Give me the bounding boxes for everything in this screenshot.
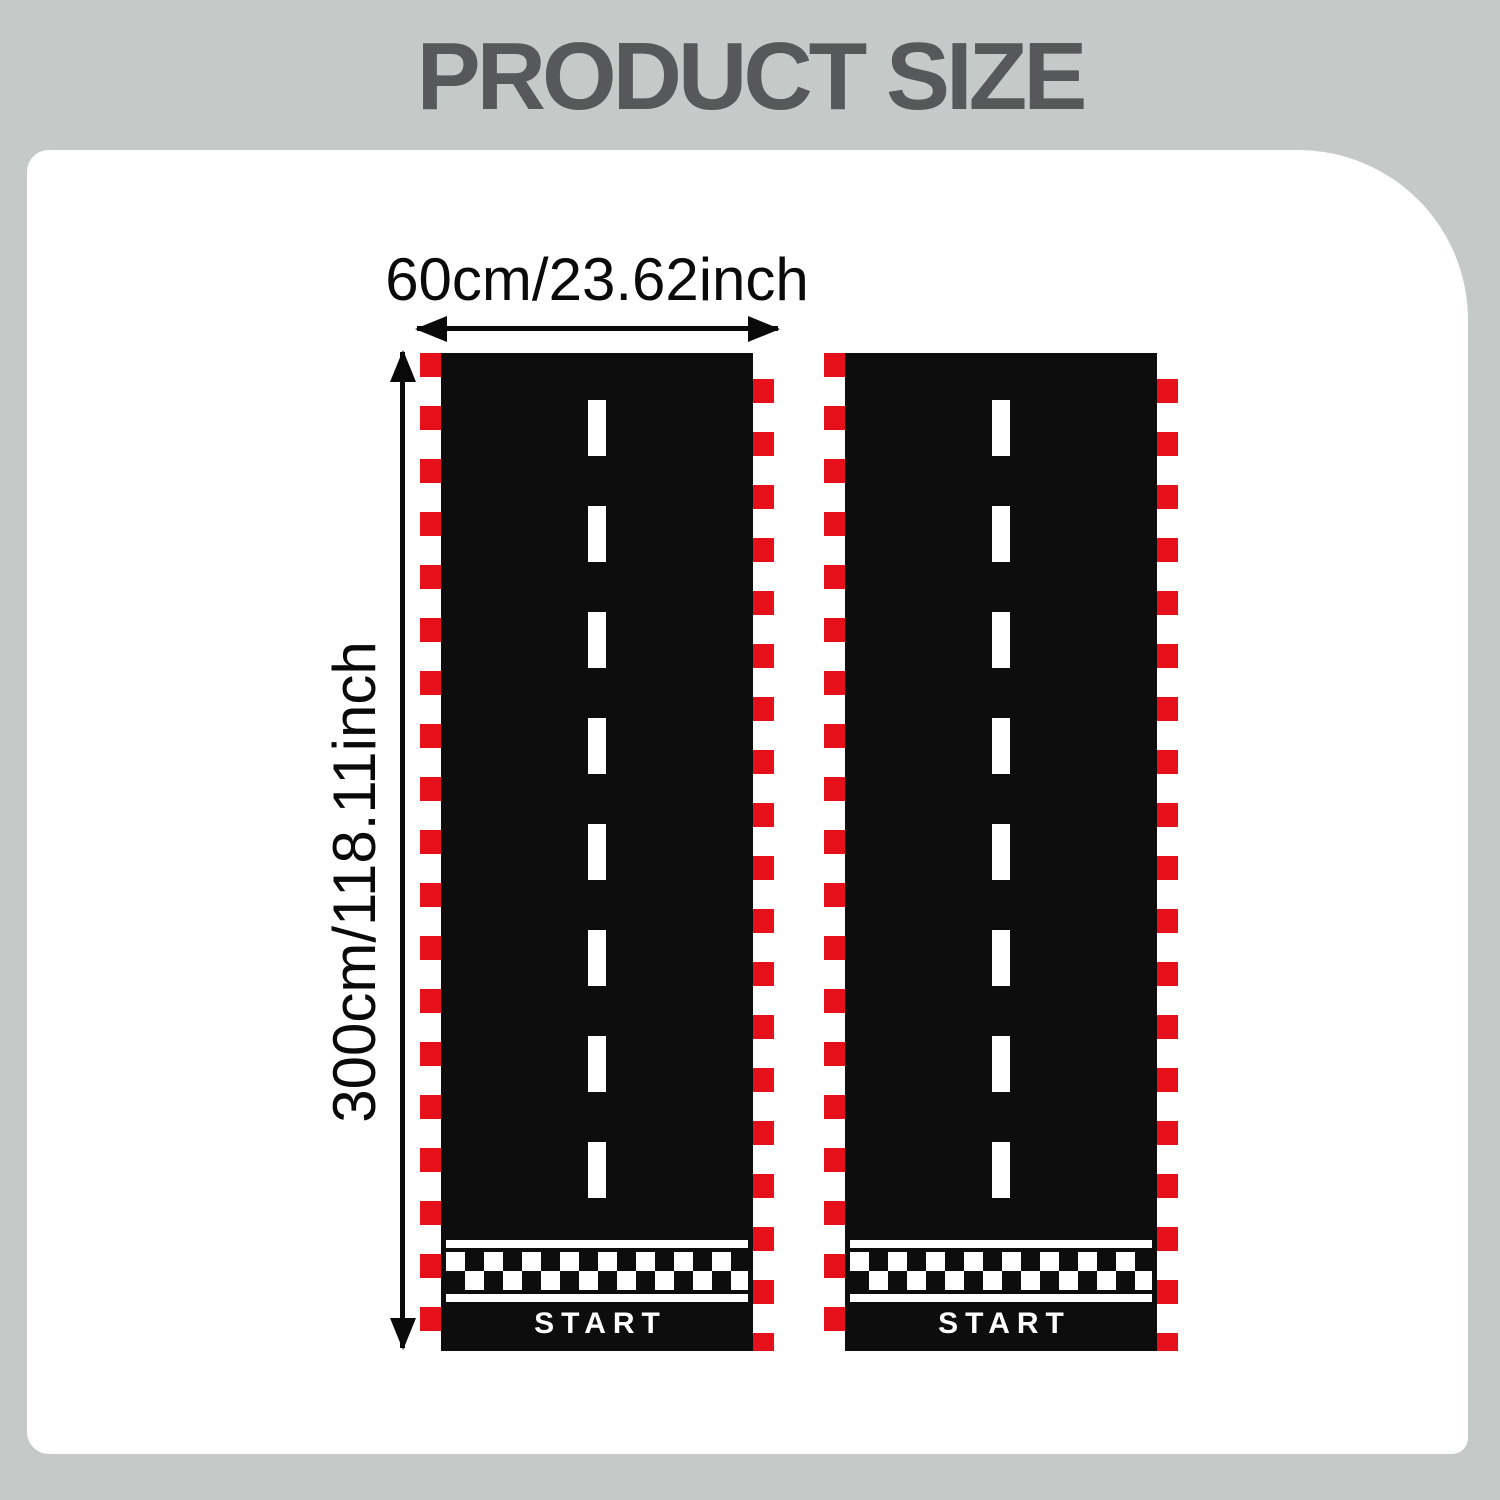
red-dashed-border-right [753,379,774,1351]
checkered-flag-band [850,1252,1152,1290]
road-center-dashed-line [588,400,606,1198]
finish-line-bottom-bar [850,1294,1152,1302]
page-title: PRODUCT SIZE [0,22,1500,132]
checkered-flag-band [446,1252,748,1290]
height-dimension-label: 300cm/118.11inch [320,562,384,1202]
start-finish-section: START [446,1240,748,1341]
finish-line-top-bar [850,1240,1152,1248]
page-background: { "title": "PRODUCT SIZE", "dimension_la… [0,0,1500,1500]
finish-line-top-bar [446,1240,748,1248]
height-dimension-arrow-icon [400,352,405,1348]
road-center-dashed-line [992,400,1010,1198]
width-dimension-arrow-icon [417,326,778,331]
finish-line-bottom-bar [446,1294,748,1302]
red-dashed-border-left [824,353,845,1351]
start-label: START [446,1307,748,1341]
race-track-mat-left: START [441,353,753,1351]
start-label: START [850,1307,1152,1341]
red-dashed-border-right [1157,379,1178,1351]
width-dimension-label: 60cm/23.62inch [337,245,857,314]
race-track-mat-right: START [845,353,1157,1351]
start-finish-section: START [850,1240,1152,1341]
red-dashed-border-left [420,353,441,1351]
